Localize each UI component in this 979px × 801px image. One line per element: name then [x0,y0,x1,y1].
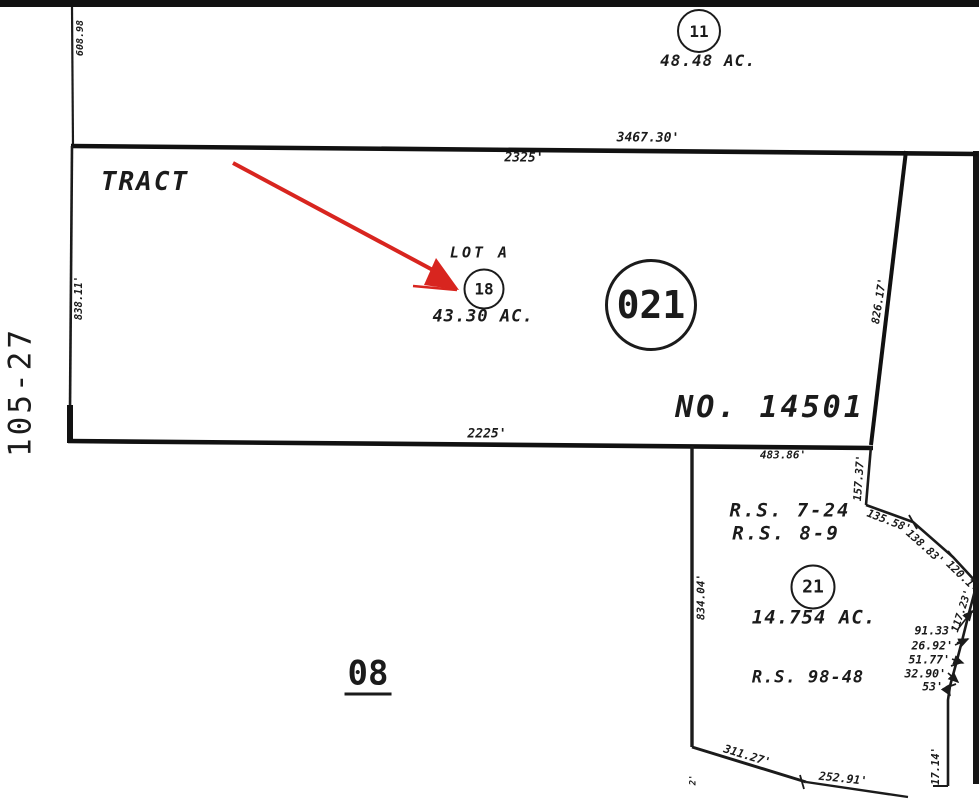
parcel-21-number: 21 [802,577,824,598]
north-section-line [72,7,73,147]
dim-seg-17: 17.14' [931,747,942,785]
parcel-11-number: 11 [689,22,708,41]
dim-small-53: 53' [922,681,943,693]
dim-left-side: 838.11' [74,276,85,320]
survey-ref-rs-7-24: R.S. 7-24 [730,502,851,521]
dim-upper-left: 608.98 [76,20,86,56]
red-annotation-arrow [233,163,459,290]
survey-ref-rs-98-48: R.S. 98-48 [752,670,864,687]
sheet-number: 105-27 [6,327,37,457]
dim-small-26: 26.92' [911,640,953,652]
parcel-11-circle: 11 [677,9,721,53]
parcel-11-area: 48.48 AC. [660,53,756,69]
parcel-map: 11 18 021 21 TRACT NO. 14501 105-27 08 4… [0,0,979,801]
parcel-18-area: 43.30 AC. [432,309,533,326]
dim-top-outer: 3467.30' [617,131,680,145]
parcel-21-area: 14.754 AC. [752,609,876,628]
tract-west-boundary [70,146,72,410]
right-edge-line [973,151,979,784]
dim-vert-834: 834.04' [696,574,707,620]
dim-seg-157: 157.37' [852,454,866,501]
parcel-021-number: 021 [617,283,686,327]
dim-top-inner: 2325' [504,151,543,164]
tract-south-boundary [68,441,873,448]
dim-small-51: 51.77' [908,654,950,666]
dim-edge-partial: 2' [690,775,699,786]
dim-bottom-inner: 2225' [467,428,506,441]
parcel-18-lot-label: LOT A [450,246,510,261]
book-page-label: 08 [345,657,392,696]
parcel-18-circle: 18 [464,269,505,310]
top-edge-bar [0,0,979,7]
parcel-021-circle: 021 [605,259,697,351]
survey-ref-rs-8-9: R.S. 8-9 [732,525,840,544]
tract-label: TRACT [101,169,189,195]
tract-number: NO. 14501 [675,393,865,423]
dim-small-32: 32.90' [904,668,946,680]
dim-bottom-outer: 483.86' [760,450,806,461]
dim-small-91: 91.33' [914,625,956,637]
parcel-21-circle: 21 [791,565,836,610]
parcel-18-number: 18 [474,280,493,299]
